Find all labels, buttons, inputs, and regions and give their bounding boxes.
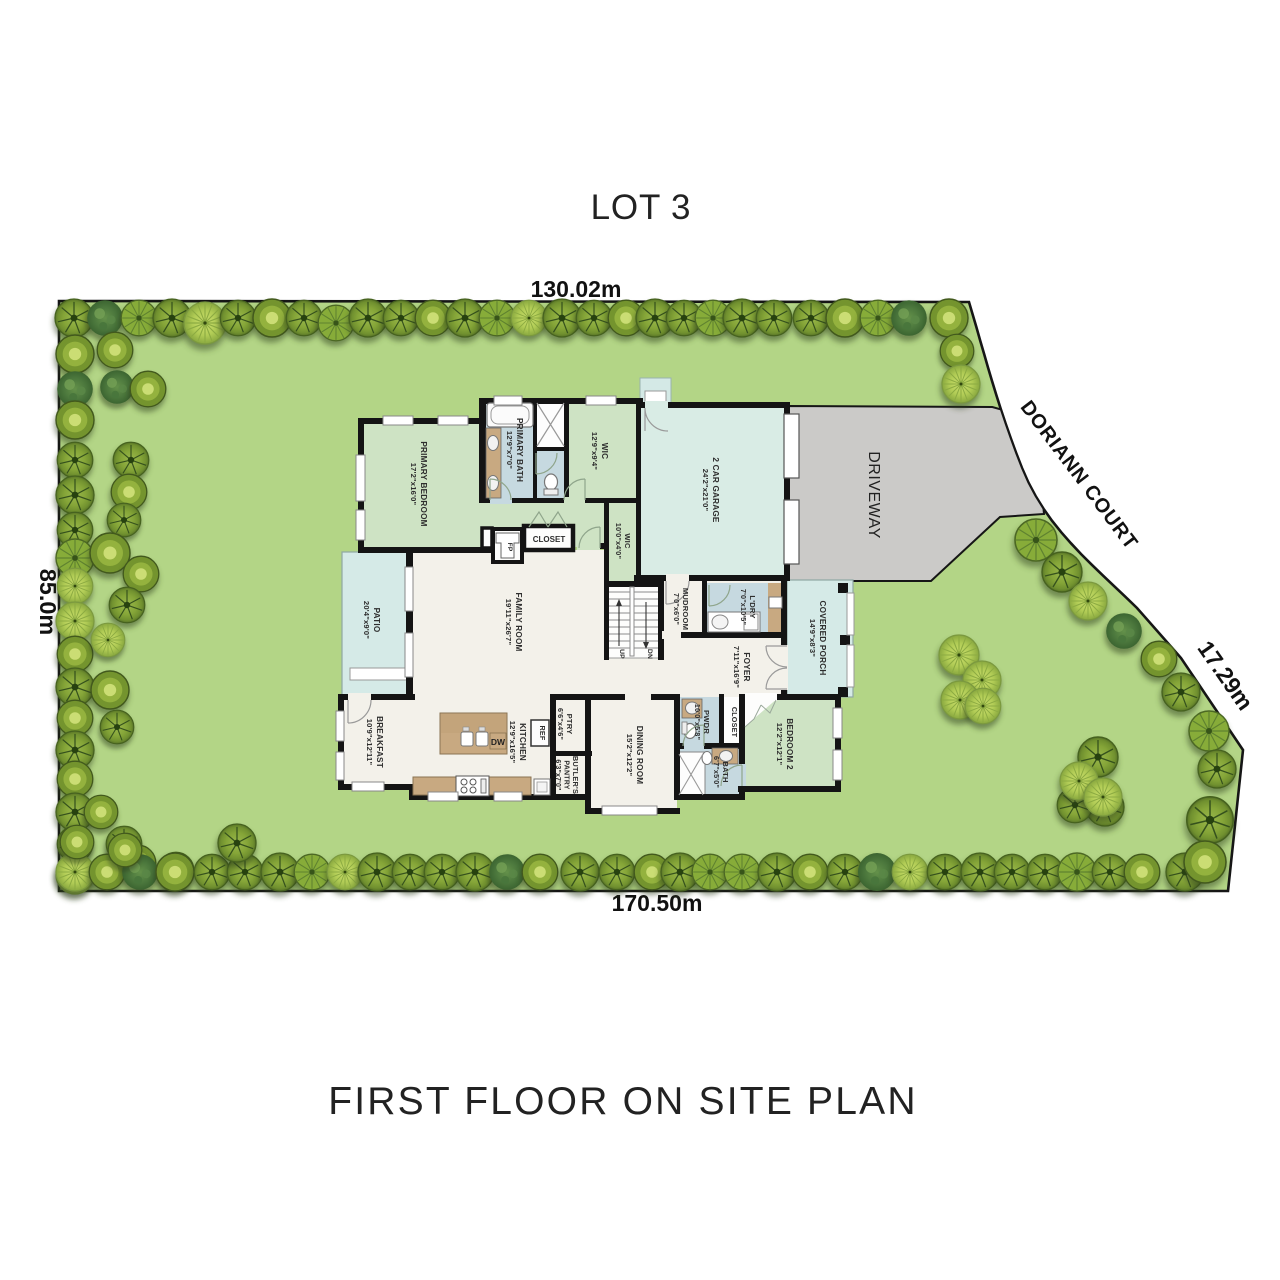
svg-text:BEDROOM 212'2"x12'1": BEDROOM 212'2"x12'1"	[775, 718, 794, 770]
svg-text:REF: REF	[538, 726, 547, 741]
svg-text:LOT 3: LOT 3	[591, 188, 692, 227]
svg-text:DRIVEWAY: DRIVEWAY	[865, 451, 882, 539]
svg-text:DN: DN	[646, 649, 653, 659]
svg-text:CLOSET: CLOSET	[730, 707, 739, 738]
svg-text:MUDROOM7'0"x6'0": MUDROOM7'0"x6'0"	[672, 588, 690, 630]
svg-text:BUTLER'SPANTRY6'3"x7'0": BUTLER'SPANTRY6'3"x7'0"	[554, 756, 580, 794]
svg-text:CLOSET: CLOSET	[533, 535, 566, 544]
svg-text:DINING ROOM15'2"x12'2": DINING ROOM15'2"x12'2"	[625, 726, 644, 785]
svg-text:UP: UP	[618, 649, 625, 659]
svg-text:FP: FP	[506, 542, 513, 551]
svg-text:FIRST FLOOR ON SITE PLAN: FIRST FLOOR ON SITE PLAN	[328, 1080, 918, 1123]
svg-text:KITCHEN12'9"x16'5": KITCHEN12'9"x16'5"	[508, 721, 527, 764]
svg-text:DW: DW	[491, 737, 506, 747]
svg-text:130.02m: 130.02m	[531, 276, 622, 302]
svg-text:BREAKFAST10'9"x12'11": BREAKFAST10'9"x12'11"	[365, 716, 384, 768]
svg-text:FAMILY ROOM19'11"x26'7": FAMILY ROOM19'11"x26'7"	[504, 592, 523, 651]
